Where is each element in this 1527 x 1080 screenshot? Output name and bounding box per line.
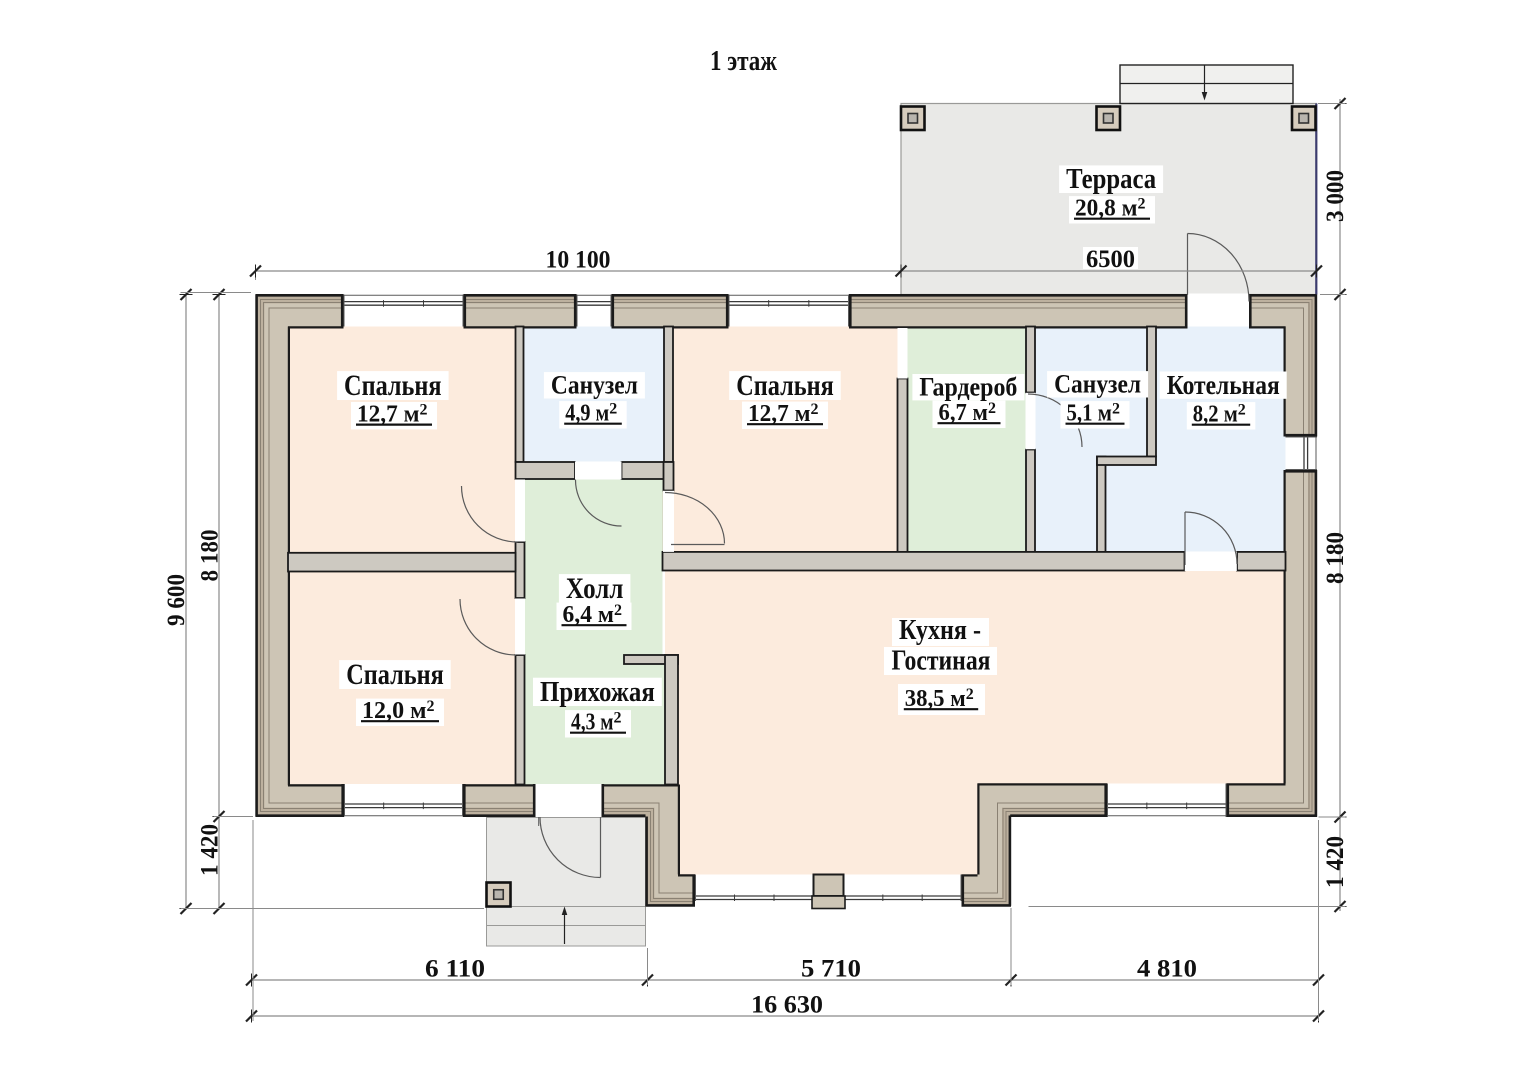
svg-text:8 180: 8 180	[197, 530, 224, 582]
svg-text:Прихожая: Прихожая	[540, 676, 655, 708]
svg-text:12,0 м2: 12,0 м2	[362, 697, 435, 724]
svg-text:Спальня: Спальня	[346, 658, 444, 691]
svg-text:Спальня: Спальня	[736, 369, 834, 402]
svg-text:5 710: 5 710	[801, 956, 861, 983]
svg-text:Кухня -: Кухня -	[899, 614, 981, 646]
svg-text:8 180: 8 180	[1322, 532, 1349, 584]
svg-text:1 420: 1 420	[1322, 836, 1349, 888]
svg-text:Спальня: Спальня	[344, 369, 442, 402]
svg-text:16 630: 16 630	[751, 992, 823, 1019]
svg-text:Котельная: Котельная	[1167, 369, 1280, 400]
svg-text:1 420: 1 420	[197, 824, 224, 876]
svg-text:Санузел: Санузел	[1054, 370, 1141, 399]
svg-text:Санузел: Санузел	[551, 371, 638, 400]
svg-text:6,4 м2: 6,4 м2	[563, 601, 623, 628]
svg-text:12,7 м2: 12,7 м2	[357, 400, 428, 427]
svg-text:6500: 6500	[1086, 246, 1135, 273]
svg-text:5,1 м2: 5,1 м2	[1067, 400, 1121, 427]
svg-text:1 этаж: 1 этаж	[710, 45, 777, 77]
svg-text:12,7 м2: 12,7 м2	[748, 400, 819, 427]
svg-text:38,5 м2: 38,5 м2	[905, 685, 974, 712]
svg-text:4 810: 4 810	[1137, 956, 1197, 983]
svg-text:9 600: 9 600	[163, 574, 190, 626]
svg-text:3 000: 3 000	[1322, 170, 1349, 222]
svg-text:Гардероб: Гардероб	[919, 372, 1017, 401]
svg-text:20,8 м2: 20,8 м2	[1075, 195, 1146, 222]
svg-text:10 100: 10 100	[546, 247, 611, 274]
svg-text:6 110: 6 110	[425, 956, 485, 983]
svg-text:Терраса: Терраса	[1066, 164, 1156, 195]
svg-text:Гостиная: Гостиная	[892, 645, 991, 677]
svg-text:6,7 м2: 6,7 м2	[939, 399, 997, 426]
